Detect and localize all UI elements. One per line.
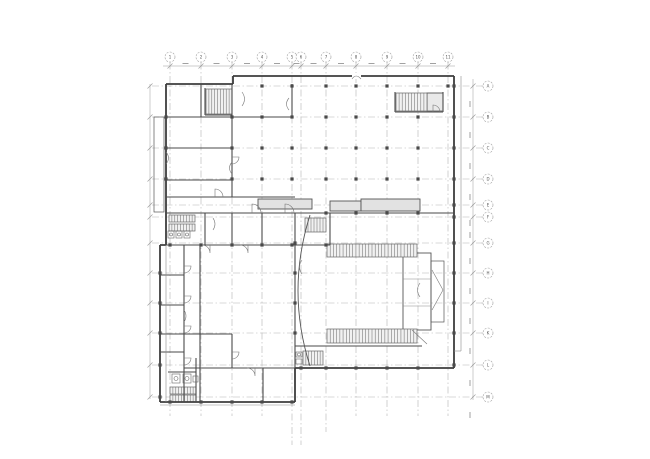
column-square (452, 331, 455, 334)
column-square (260, 400, 263, 403)
column-square (452, 363, 455, 366)
column-square (385, 211, 388, 214)
grid-bubble-label: A (487, 83, 490, 88)
column-square (260, 177, 263, 180)
column-square (290, 177, 293, 180)
door-swing-arc (215, 189, 223, 197)
fixture-rect (172, 374, 180, 383)
column-square (290, 400, 293, 403)
door-swing-arc (232, 157, 239, 164)
door-swing-arc (232, 352, 239, 359)
fixture-circle (186, 233, 189, 236)
column-square (324, 146, 327, 149)
column-square (354, 211, 357, 214)
column-square (354, 146, 357, 149)
grid-bubble-label: D (486, 176, 489, 181)
column-square (164, 146, 167, 149)
column-square (452, 215, 455, 218)
column-square (385, 177, 388, 180)
column-square (324, 366, 327, 369)
grid-bubble-label: M (486, 394, 490, 399)
column-square (416, 84, 419, 87)
column-square (158, 301, 161, 304)
door-swing-arc (247, 368, 255, 376)
column-square (168, 400, 171, 403)
stair-hatch (170, 395, 196, 402)
plan-rect (403, 253, 431, 330)
grid-bubble-label: 4 (261, 54, 264, 59)
fixture-circle (178, 233, 181, 236)
column-square (452, 203, 455, 206)
grid-bubble-label: H (486, 270, 489, 275)
column-square (199, 400, 202, 403)
fixture-rect (176, 231, 182, 238)
fixture-rect (168, 231, 174, 238)
column-square (230, 177, 233, 180)
column-square (416, 211, 419, 214)
column-square (452, 301, 455, 304)
floor-plan-canvas: 1234567891011ABCDEFGHIKLM (0, 0, 650, 459)
curved-wall (298, 215, 310, 366)
column-square (452, 115, 455, 118)
fixture-rect (184, 231, 190, 238)
door-swing-arc (184, 296, 191, 303)
stair-hatch (169, 224, 195, 231)
column-square (290, 84, 293, 87)
column-square (164, 115, 167, 118)
column-square (299, 366, 302, 369)
grid-bubble-label: 3 (231, 54, 234, 59)
column-square (158, 331, 161, 334)
column-square (385, 146, 388, 149)
plan-rect (330, 201, 361, 211)
column-square (290, 115, 293, 118)
column-square (452, 146, 455, 149)
break-mark (213, 218, 215, 230)
grid-bubble-label: 5 (291, 54, 294, 59)
column-square (260, 243, 263, 246)
column-square (324, 211, 327, 214)
door-swing-arc (202, 245, 210, 253)
column-square (452, 241, 455, 244)
grid-bubble-label: 1 (169, 54, 172, 59)
fixture-circle (185, 377, 189, 381)
column-square (324, 115, 327, 118)
column-square (446, 84, 449, 87)
plan-rect (427, 93, 443, 111)
column-square (385, 84, 388, 87)
column-square (260, 115, 263, 118)
column-square (324, 177, 327, 180)
break-mark (242, 92, 245, 106)
column-square (158, 395, 161, 398)
column-square (230, 146, 233, 149)
column-square (416, 177, 419, 180)
column-square (354, 84, 357, 87)
door-swing-arc (184, 266, 191, 273)
fixture-circle (174, 377, 178, 381)
column-square (164, 177, 167, 180)
door-swing-arc (184, 358, 191, 365)
grid-bubble-label: 9 (386, 54, 389, 59)
column-square (158, 363, 161, 366)
grid-bubble-label: C (487, 145, 490, 150)
stair-hatch (169, 215, 195, 222)
column-square (324, 243, 327, 246)
column-square (293, 271, 296, 274)
column-square (230, 115, 233, 118)
grid-bubble-label: B (487, 114, 490, 119)
column-square (324, 84, 327, 87)
grid-bubble-label: 8 (355, 54, 358, 59)
column-square (260, 84, 263, 87)
grid-bubble-label: 6 (300, 54, 303, 59)
column-square (452, 84, 455, 87)
grid-bubble-label: 10 (415, 54, 421, 59)
column-square (293, 301, 296, 304)
grid-bubble-label: I (487, 300, 488, 305)
column-square (354, 366, 357, 369)
column-square (385, 366, 388, 369)
grid-bubble-label: 7 (325, 54, 328, 59)
break-mark (432, 290, 443, 310)
grid-bubble-label: K (487, 330, 490, 335)
grid-bubble-label: 2 (200, 54, 203, 59)
column-square (290, 243, 293, 246)
door-swing-arc (240, 245, 248, 253)
column-square (293, 241, 296, 244)
column-square (290, 146, 293, 149)
column-square (416, 366, 419, 369)
grid-bubble-label: 11 (445, 54, 451, 59)
plan-rect (361, 199, 420, 211)
column-square (260, 146, 263, 149)
column-square (416, 146, 419, 149)
plan-rect (154, 117, 164, 212)
floor-plan-drawing: 1234567891011ABCDEFGHIKLM (0, 0, 650, 459)
column-square (230, 400, 233, 403)
column-square (452, 271, 455, 274)
column-square (168, 243, 171, 246)
column-square (293, 331, 296, 334)
door-swing-arc (184, 326, 191, 333)
column-square (158, 271, 161, 274)
stair-hatch (206, 89, 232, 114)
grid-bubble-label: G (486, 240, 489, 245)
column-square (230, 243, 233, 246)
column-square (385, 115, 388, 118)
column-square (452, 177, 455, 180)
column-square (354, 177, 357, 180)
column-square (416, 115, 419, 118)
column-square (354, 115, 357, 118)
fixture-circle (298, 353, 301, 356)
break-mark (287, 98, 290, 110)
stair-hatch (170, 387, 196, 394)
